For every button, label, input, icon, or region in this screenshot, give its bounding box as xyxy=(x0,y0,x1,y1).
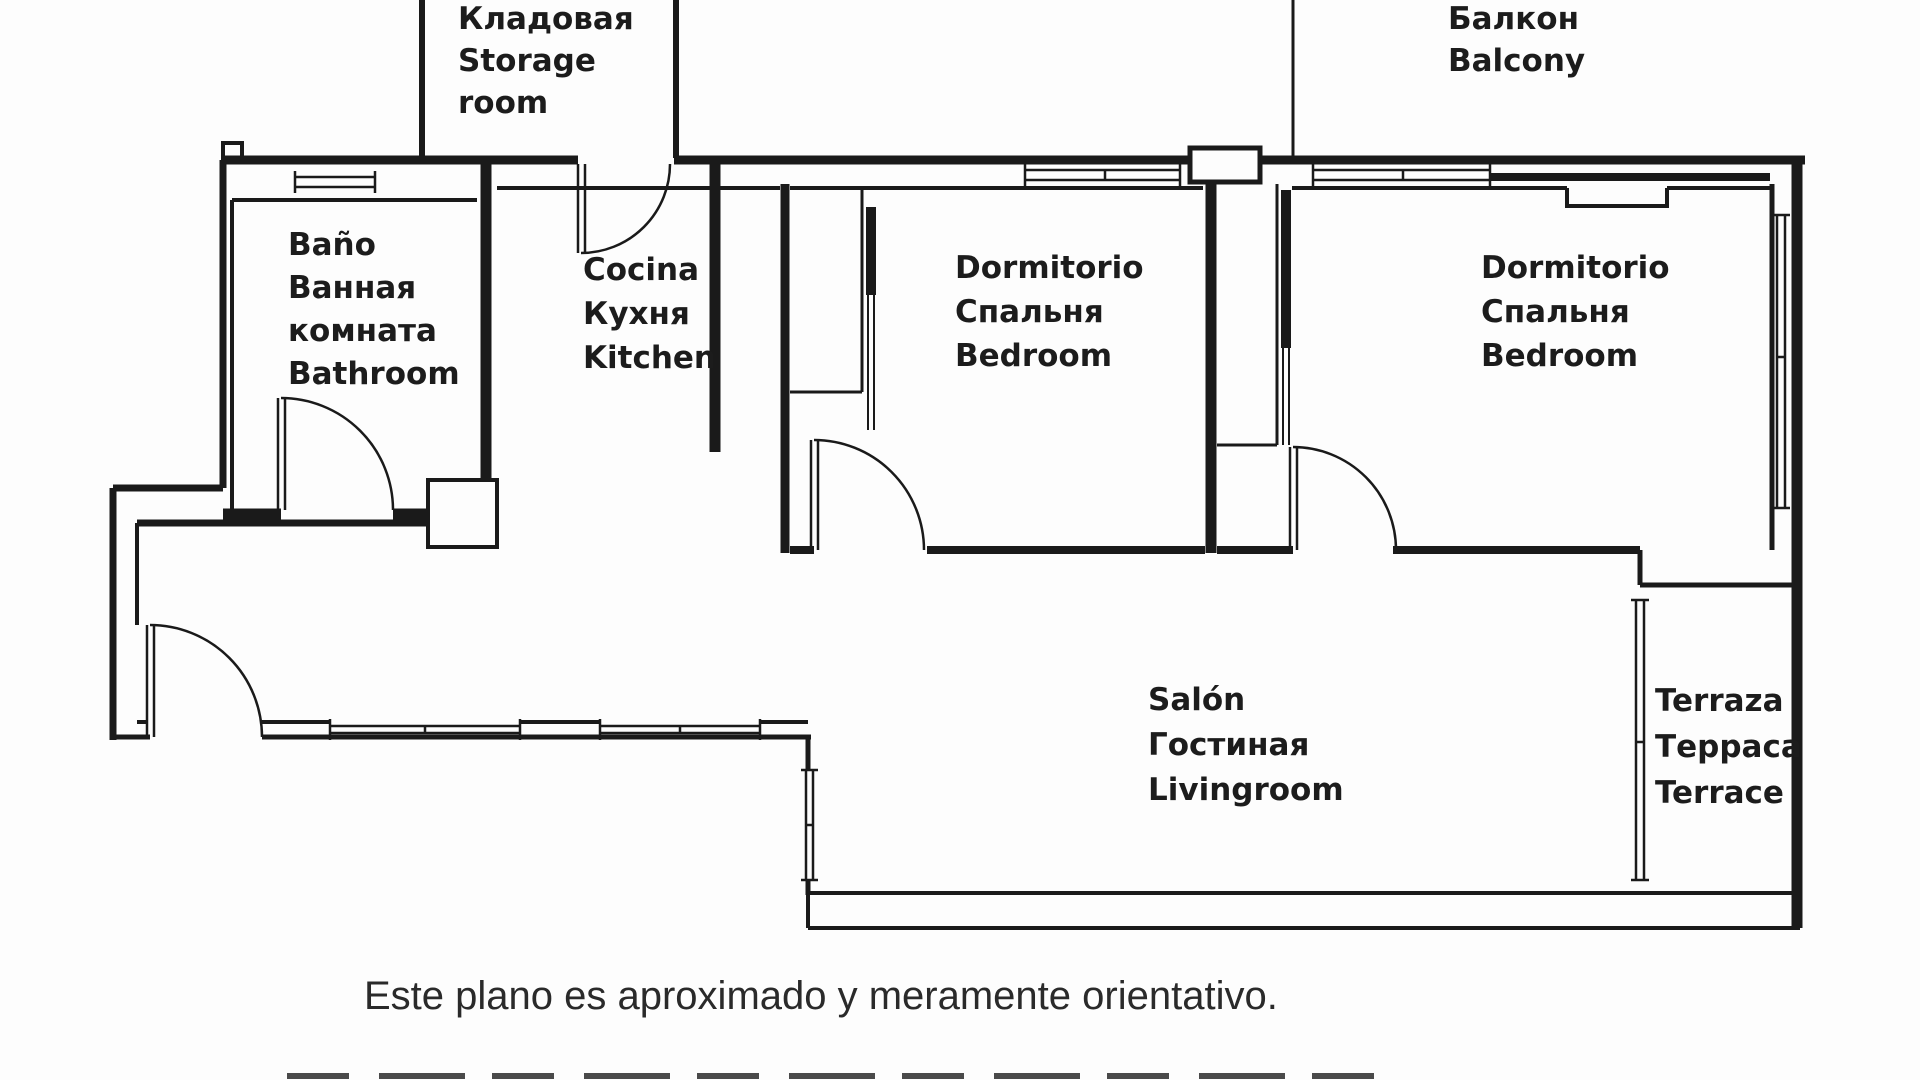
floor-plan-drawing xyxy=(0,0,1920,1080)
hall-bottom-wall xyxy=(113,722,811,895)
room-label-bathroom: Baño Ванная комната Bathroom xyxy=(288,224,460,396)
terrace-walls xyxy=(1640,550,1797,585)
exterior-top-wall xyxy=(223,143,1805,177)
floor-plan-page: Кладовая Storage room Балкон Balcony Bañ… xyxy=(0,0,1920,1080)
exterior-left-wall xyxy=(113,160,223,740)
disclaimer-caption: Este plano es aproximado y meramente ori… xyxy=(364,972,1278,1020)
livingroom-left-window xyxy=(801,770,818,880)
entrance-door xyxy=(147,625,262,737)
room-label-bedroom-2: Dormitorio Спальня Bedroom xyxy=(1481,246,1670,378)
top-wall-pier xyxy=(1190,148,1260,182)
terrace-window xyxy=(1631,600,1649,880)
bedroom1-door xyxy=(811,440,924,550)
bedroom2-door xyxy=(1290,447,1396,550)
livingroom-bottom-wall xyxy=(808,893,1800,928)
room-label-terrace: Terraza Терраса Terrace xyxy=(1655,678,1802,816)
bedroom1-sliding-door xyxy=(866,207,876,430)
room-label-storage: Кладовая Storage room xyxy=(458,0,634,124)
cropped-text-row xyxy=(287,1073,1392,1079)
room-label-livingroom: Salón Гостиная Livingroom xyxy=(1148,678,1344,813)
room-label-balcony: Балкон Balcony xyxy=(1448,0,1585,82)
bedroom2-sliding-door xyxy=(1281,190,1291,445)
bathroom-window xyxy=(295,171,375,193)
kitchen-door xyxy=(578,164,670,253)
bedroom2-balcony-window xyxy=(1313,164,1490,186)
bathroom-door xyxy=(278,398,393,510)
room-label-bedroom-1: Dormitorio Спальня Bedroom xyxy=(955,246,1144,378)
bedroom2-right-window xyxy=(1772,215,1790,508)
room-label-kitchen: Cocina Кухня Kitchen xyxy=(583,248,716,380)
bedroom1-top-window xyxy=(1025,164,1180,186)
